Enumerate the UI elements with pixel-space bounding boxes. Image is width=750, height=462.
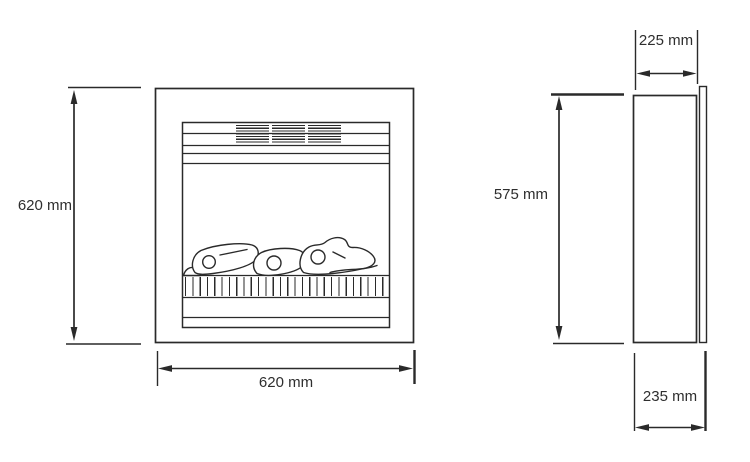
- side-front-flange: [700, 87, 707, 343]
- arrow-down: [71, 327, 78, 341]
- arrow-right: [399, 365, 413, 372]
- vent-grille-segment-middle: [272, 125, 305, 144]
- log-middle-knot: [267, 256, 281, 270]
- front-height-dimension-label: 620 mm: [14, 198, 72, 214]
- log-right-knot: [311, 250, 325, 264]
- dimension-diagram: 620 mm 620 mm 575 mm 225 mm 235 mm: [0, 0, 750, 462]
- vent-grille-segment-left: [236, 125, 269, 144]
- arrow-up: [71, 90, 78, 104]
- front-width-dimension-label: 620 mm: [157, 375, 415, 391]
- arrow-up: [556, 96, 563, 110]
- front-height-dimension: [66, 88, 141, 345]
- vent-grille-segment-right: [308, 125, 341, 144]
- side-body: [634, 96, 697, 343]
- arrow-down: [556, 326, 563, 340]
- log-set: [184, 238, 378, 276]
- fuel-bed-hatch: [185, 277, 387, 296]
- arrow-left: [637, 70, 651, 77]
- side-depth-top-dimension-label: 225 mm: [633, 33, 699, 49]
- arrow-right: [691, 424, 705, 431]
- arrow-left: [635, 424, 649, 431]
- log-left: [192, 244, 258, 275]
- side-view: [634, 87, 707, 343]
- arrow-left: [158, 365, 172, 372]
- side-height-dimension: [551, 95, 624, 344]
- side-height-dimension-label: 575 mm: [474, 187, 548, 203]
- log-left-knot: [203, 256, 216, 269]
- arrow-right: [683, 70, 697, 77]
- side-depth-bottom-dimension-label: 235 mm: [634, 389, 706, 405]
